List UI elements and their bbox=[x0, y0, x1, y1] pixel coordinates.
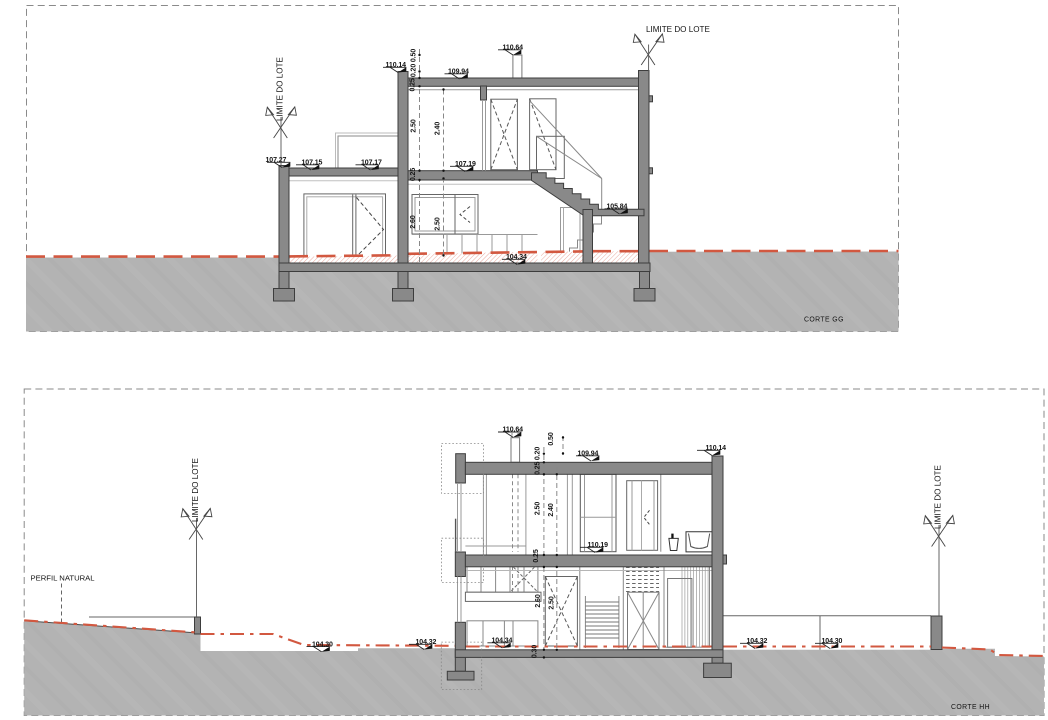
svg-text:0.25: 0.25 bbox=[410, 168, 417, 181]
svg-text:110.64: 110.64 bbox=[503, 427, 524, 434]
svg-text:104.32: 104.32 bbox=[747, 638, 768, 645]
svg-text:LIMITE DO LOTE: LIMITE DO LOTE bbox=[646, 25, 710, 34]
svg-text:0.50: 0.50 bbox=[411, 49, 418, 62]
svg-text:2.60: 2.60 bbox=[410, 215, 417, 228]
svg-text:CORTE GG: CORTE GG bbox=[804, 317, 844, 324]
svg-text:2.40: 2.40 bbox=[548, 503, 555, 516]
svg-text:109.94: 109.94 bbox=[448, 69, 469, 76]
svg-text:110.64: 110.64 bbox=[503, 45, 524, 52]
svg-text:PERFIL NATURAL: PERFIL NATURAL bbox=[31, 574, 96, 583]
svg-text:107.19: 107.19 bbox=[455, 161, 476, 168]
svg-text:2.60: 2.60 bbox=[535, 594, 542, 607]
svg-text:104.30: 104.30 bbox=[312, 641, 333, 648]
svg-text:104.34: 104.34 bbox=[506, 254, 527, 261]
svg-text:107.15: 107.15 bbox=[302, 160, 323, 167]
svg-text:2.50: 2.50 bbox=[549, 596, 556, 609]
svg-text:109.94: 109.94 bbox=[578, 451, 599, 458]
svg-text:2.50: 2.50 bbox=[435, 217, 442, 230]
svg-text:104.30: 104.30 bbox=[822, 638, 843, 645]
svg-text:0.25: 0.25 bbox=[533, 549, 540, 562]
svg-text:104.32: 104.32 bbox=[416, 639, 437, 646]
svg-text:LIMITE DO LOTE: LIMITE DO LOTE bbox=[934, 465, 943, 529]
svg-text:110.14: 110.14 bbox=[386, 62, 407, 69]
svg-text:104.34: 104.34 bbox=[492, 638, 513, 645]
svg-text:2.50: 2.50 bbox=[535, 502, 542, 515]
svg-text:CORTE HH: CORTE HH bbox=[951, 704, 990, 711]
svg-text:LIMITE DO LOTE: LIMITE DO LOTE bbox=[191, 458, 200, 522]
svg-text:2.50: 2.50 bbox=[411, 119, 418, 132]
svg-text:0.30: 0.30 bbox=[532, 645, 539, 658]
svg-text:0.20: 0.20 bbox=[535, 447, 542, 460]
svg-text:110.19: 110.19 bbox=[588, 542, 609, 549]
svg-text:105.84: 105.84 bbox=[607, 204, 628, 211]
svg-text:LIMITE DO LOTE: LIMITE DO LOTE bbox=[276, 57, 285, 121]
svg-text:0.25: 0.25 bbox=[410, 78, 417, 91]
svg-text:0.50: 0.50 bbox=[548, 432, 555, 445]
svg-text:107.17: 107.17 bbox=[361, 160, 382, 167]
svg-text:2.40: 2.40 bbox=[435, 122, 442, 135]
svg-text:110.14: 110.14 bbox=[706, 445, 727, 452]
svg-text:0.20: 0.20 bbox=[411, 64, 418, 77]
svg-text:107.27: 107.27 bbox=[266, 157, 287, 164]
svg-text:0.25: 0.25 bbox=[535, 461, 542, 474]
